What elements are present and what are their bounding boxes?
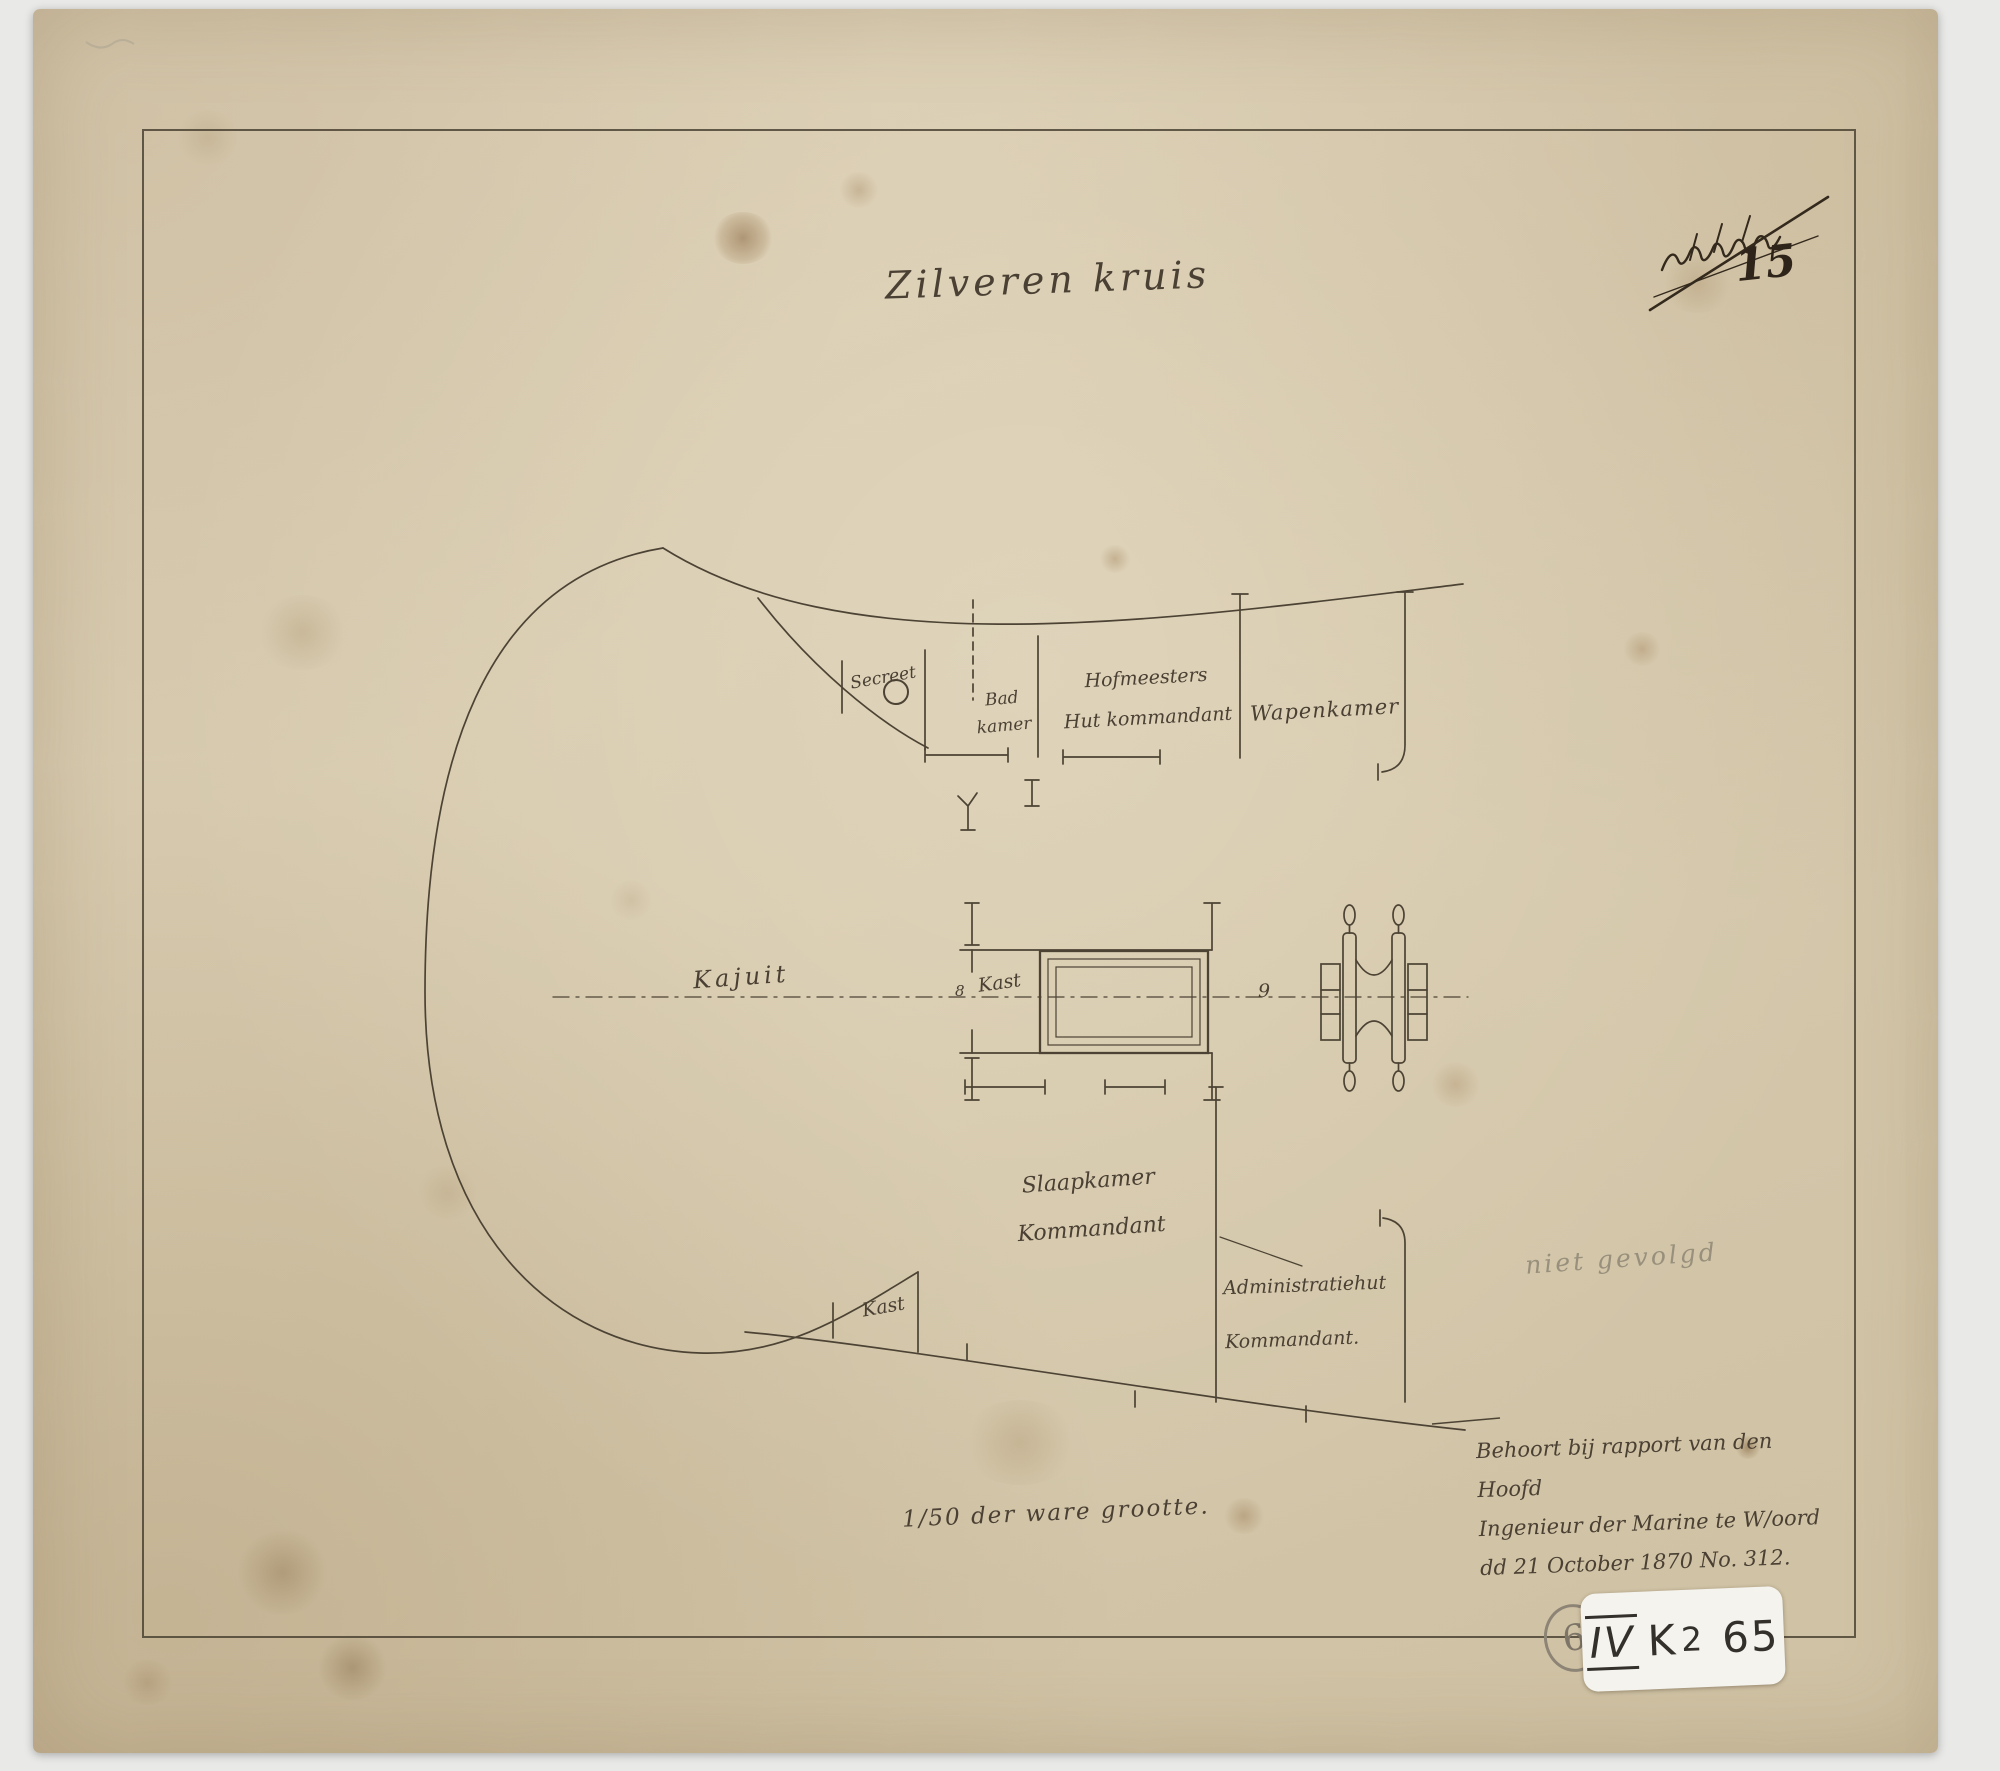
sticker-number: 65 [1721, 1610, 1780, 1661]
pencil-mark [86, 40, 1500, 1424]
upper-bulkhead-b [1063, 750, 1160, 764]
sticker-code-number: 2 [1680, 1619, 1705, 1659]
room-label-badkamer: Bad kamer [966, 683, 1040, 743]
upper-bulkhead-a [925, 748, 1008, 762]
skylight-outer [1040, 951, 1208, 1053]
report-note-line2: Ingenieur der Marine te W/oord [1478, 1505, 1820, 1541]
steering-wheel [1321, 905, 1427, 1091]
wall-stub-tick [1025, 780, 1039, 806]
wheel-drum [1356, 960, 1392, 1036]
room-label-hofmeesters: Hofmeesters Hut kommandant [1050, 653, 1244, 743]
report-note-line3: dd 21 October 1870 No. 312. [1480, 1545, 1791, 1580]
report-note: Behoort bij rapport van den Hoofd Ingeni… [1475, 1420, 1830, 1588]
kast-right-step-bottom [1204, 1053, 1220, 1100]
kast-outer-stub-top [965, 903, 979, 945]
lower-bulkhead-a [965, 1080, 1045, 1094]
station-mark-8: 8 [955, 982, 965, 1000]
room-label-slaapkamer: Slaapkamer Kommandant [982, 1151, 1198, 1261]
door-mark-y [958, 793, 977, 830]
station-mark-9: 9 [1258, 980, 1270, 1002]
skylight-inner [1056, 967, 1192, 1037]
kast-outer-stub-bottom [965, 1058, 979, 1100]
sticker-code: K [1647, 1615, 1679, 1665]
wapenkamer-right-wall [1378, 592, 1413, 780]
report-note-line1: Behoort bij rapport van den Hoofd [1476, 1429, 1773, 1502]
room-label-administratiehut: Administratiehut Kommandant. [1222, 1255, 1411, 1369]
skylight-middle [1048, 959, 1200, 1045]
sticker-roman-numeral: IV [1585, 1613, 1638, 1670]
lower-bulkhead-b [1105, 1080, 1165, 1094]
scanned-ship-plan: Zilveren kruis 15 Secreet Bad kamer Hofm… [0, 0, 2000, 1771]
archive-sticker: IV K 2 65 [1580, 1586, 1786, 1692]
stern-curve [425, 548, 918, 1353]
slaapkamer-right-wall [1209, 1087, 1223, 1402]
kast-right-step-top [1204, 903, 1220, 950]
drawing-border [143, 130, 1855, 1637]
hull-top-line [663, 548, 1463, 624]
corner-number: 15 [1733, 235, 1799, 292]
